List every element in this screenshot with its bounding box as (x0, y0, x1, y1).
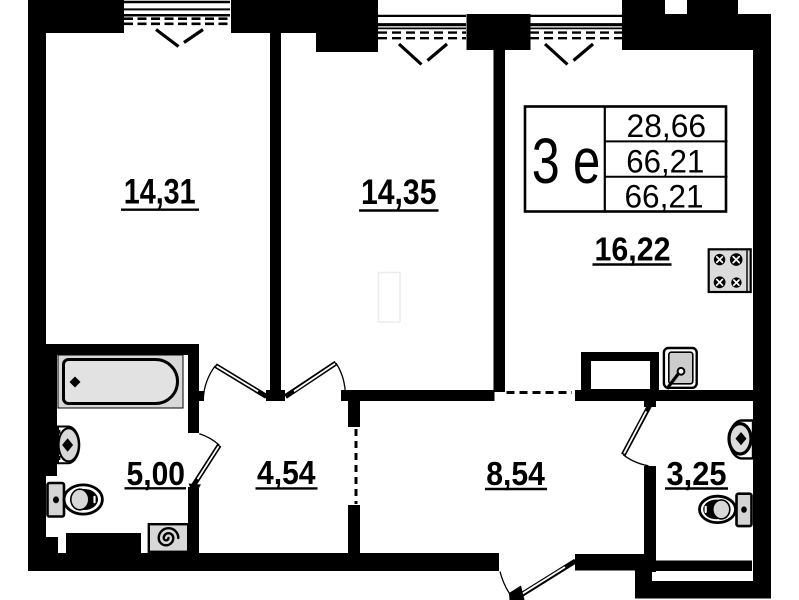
svg-text:8,54: 8,54 (486, 455, 545, 492)
svg-text:14,31: 14,31 (124, 173, 196, 212)
svg-text:28,66: 28,66 (627, 108, 707, 144)
svg-text:66,21: 66,21 (626, 143, 704, 179)
svg-text:16,22: 16,22 (595, 232, 671, 269)
svg-text:5,00: 5,00 (127, 455, 186, 492)
svg-text:4,54: 4,54 (257, 454, 316, 491)
svg-text:14,35: 14,35 (361, 173, 437, 212)
svg-text:3,25: 3,25 (667, 455, 727, 492)
svg-text:е: е (573, 125, 600, 197)
svg-text:3: 3 (532, 125, 560, 197)
svg-text:66,21: 66,21 (625, 179, 704, 215)
